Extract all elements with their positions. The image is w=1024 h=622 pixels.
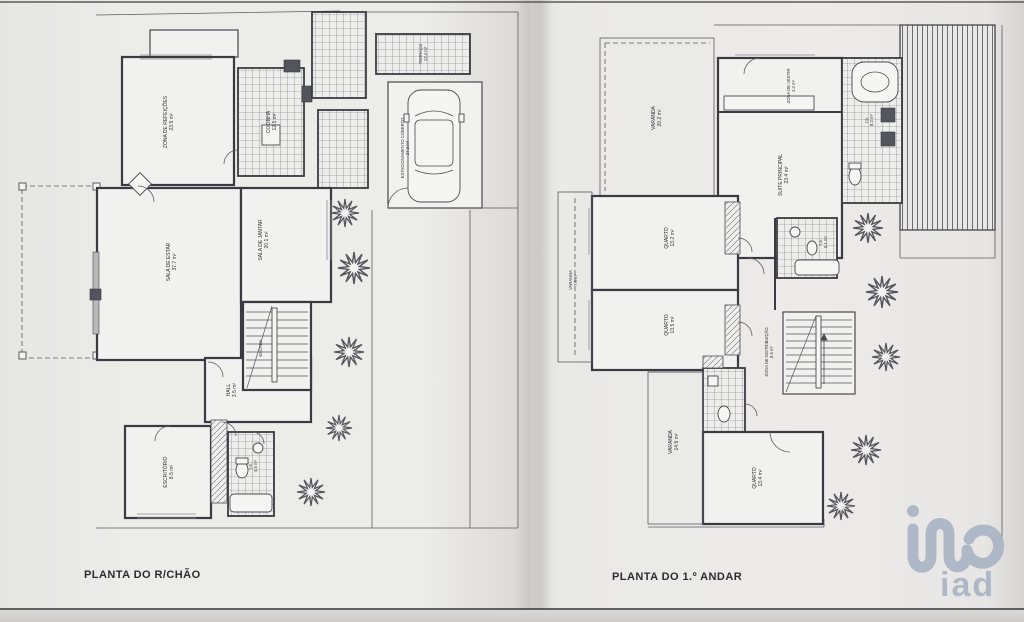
toilet-icon bbox=[718, 406, 730, 422]
room-label-varanda-bottom: VARANDA 14.9 m² bbox=[668, 429, 680, 453]
closet-counter bbox=[724, 96, 814, 110]
toilet-tank bbox=[236, 458, 248, 464]
reception-room bbox=[122, 57, 234, 185]
tree-icon bbox=[331, 199, 359, 227]
iad-logo: iad bbox=[907, 505, 999, 604]
ground-floor-plan: ZONA DE REFEIÇÕES 23.5 m² COZINHA 12.1 m… bbox=[19, 11, 518, 528]
tree-icon bbox=[866, 276, 898, 308]
svg-text:7.5 m²: 7.5 m² bbox=[573, 273, 578, 285]
pergola-post bbox=[19, 183, 26, 190]
window-handle bbox=[90, 289, 101, 300]
toilet-icon bbox=[849, 167, 861, 185]
svg-text:14.9 m²: 14.9 m² bbox=[674, 433, 680, 450]
kitchen-appliance bbox=[302, 86, 312, 102]
pergola-post bbox=[19, 352, 26, 359]
bathtub-icon bbox=[795, 260, 839, 275]
svg-text:ESCADA: ESCADA bbox=[258, 339, 263, 356]
room-label-quarto1: QUARTO 13.2 m² bbox=[664, 227, 676, 248]
stairs-ground bbox=[243, 302, 311, 390]
floor-plans-drawing: ZONA DE REFEIÇÕES 23.5 m² COZINHA 12.1 m… bbox=[0, 0, 1024, 622]
stairs-first bbox=[783, 312, 855, 394]
room-label-escada: ESCADA bbox=[258, 339, 263, 356]
laundry-tiled bbox=[318, 110, 368, 188]
svg-text:12.4 m²: 12.4 m² bbox=[423, 46, 428, 61]
sink-icon bbox=[253, 443, 263, 453]
sink-icon bbox=[881, 132, 895, 146]
iad-logo-script bbox=[913, 524, 999, 568]
room-label-quarto3: QUARTO 13.4 m² bbox=[752, 467, 764, 488]
first-floor-plan: VARANDA 20.2 m² ZONA DE VESTIR 4.2 m² SU… bbox=[558, 25, 1002, 542]
room-label-varanda-top: VARANDA 20.2 m² bbox=[651, 105, 663, 129]
tree-icon bbox=[853, 213, 883, 243]
room-label-distribuicao: ZONA DE DISTRIBUIÇÃO 8.6 m² bbox=[764, 327, 774, 377]
car-icon bbox=[404, 90, 464, 202]
kitchen-counter bbox=[284, 60, 300, 72]
svg-text:27.3 m²: 27.3 m² bbox=[405, 140, 410, 155]
toilet-tank bbox=[849, 163, 861, 169]
svg-text:20.1 m²: 20.1 m² bbox=[264, 231, 270, 248]
corner-bathtub-icon bbox=[852, 62, 898, 102]
dining-room bbox=[241, 188, 331, 302]
annex-room bbox=[150, 30, 238, 57]
tree-icon bbox=[326, 415, 352, 441]
svg-text:37.7 m²: 37.7 m² bbox=[172, 253, 178, 270]
tree-icon bbox=[851, 435, 881, 465]
svg-text:4.2 m²: 4.2 m² bbox=[791, 79, 796, 91]
bathtub-icon bbox=[230, 494, 272, 512]
svg-text:5.1 m²: 5.1 m² bbox=[823, 235, 828, 247]
iad-logo-dot bbox=[907, 505, 919, 517]
svg-text:12.1 m²: 12.1 m² bbox=[272, 113, 278, 130]
wardrobe bbox=[725, 202, 740, 254]
sink-icon bbox=[708, 376, 718, 386]
svg-text:8.6 m²: 8.6 m² bbox=[769, 345, 774, 357]
svg-text:8.5 m²: 8.5 m² bbox=[169, 465, 175, 480]
sink-icon bbox=[881, 108, 895, 122]
iad-logo-text: iad bbox=[940, 566, 995, 604]
svg-text:8.2 m²: 8.2 m² bbox=[869, 113, 874, 125]
carport-roof bbox=[900, 25, 995, 230]
room-label-quarto2: QUARTO 13.5 m² bbox=[664, 314, 676, 335]
svg-text:13.2 m²: 13.2 m² bbox=[670, 229, 676, 246]
tree-icon bbox=[297, 478, 325, 506]
plan-title-ground: PLANTA DO R/CHÃO bbox=[84, 569, 201, 581]
wardrobe bbox=[211, 420, 227, 503]
svg-text:3.5 m²: 3.5 m² bbox=[232, 383, 238, 398]
room-label-varanda-left: VARANDA 7.5 m² bbox=[568, 270, 578, 290]
tree-icon bbox=[338, 252, 370, 284]
toilet-icon bbox=[807, 241, 817, 255]
pergola-outline bbox=[22, 186, 98, 358]
svg-text:13.5 m²: 13.5 m² bbox=[670, 316, 676, 333]
svg-text:13.4 m²: 13.4 m² bbox=[758, 469, 764, 486]
scan-edge-bottom-band bbox=[0, 610, 1024, 622]
tree-icon bbox=[827, 492, 855, 520]
svg-text:23.4 m²: 23.4 m² bbox=[784, 166, 790, 183]
tree-icon bbox=[872, 343, 900, 371]
svg-text:20.2 m²: 20.2 m² bbox=[657, 109, 663, 126]
closet bbox=[703, 356, 723, 368]
tree-icon bbox=[334, 337, 364, 367]
sink-icon bbox=[790, 227, 800, 237]
room-label-cozinha: COZINHA 12.1 m² bbox=[266, 110, 278, 133]
room-label-hall: HALL 3.5 m² bbox=[226, 383, 238, 398]
svg-text:ZONA DE REFEIÇÕES: ZONA DE REFEIÇÕES bbox=[162, 95, 169, 148]
svg-text:ESCRITÓRIO: ESCRITÓRIO bbox=[162, 456, 169, 487]
plan-title-first: PLANTA DO 1.º ANDAR bbox=[612, 571, 742, 583]
svg-text:4.5 m²: 4.5 m² bbox=[253, 459, 258, 471]
patio-top bbox=[312, 12, 366, 98]
svg-text:23.5 m²: 23.5 m² bbox=[169, 113, 175, 130]
wardrobe bbox=[725, 305, 740, 355]
